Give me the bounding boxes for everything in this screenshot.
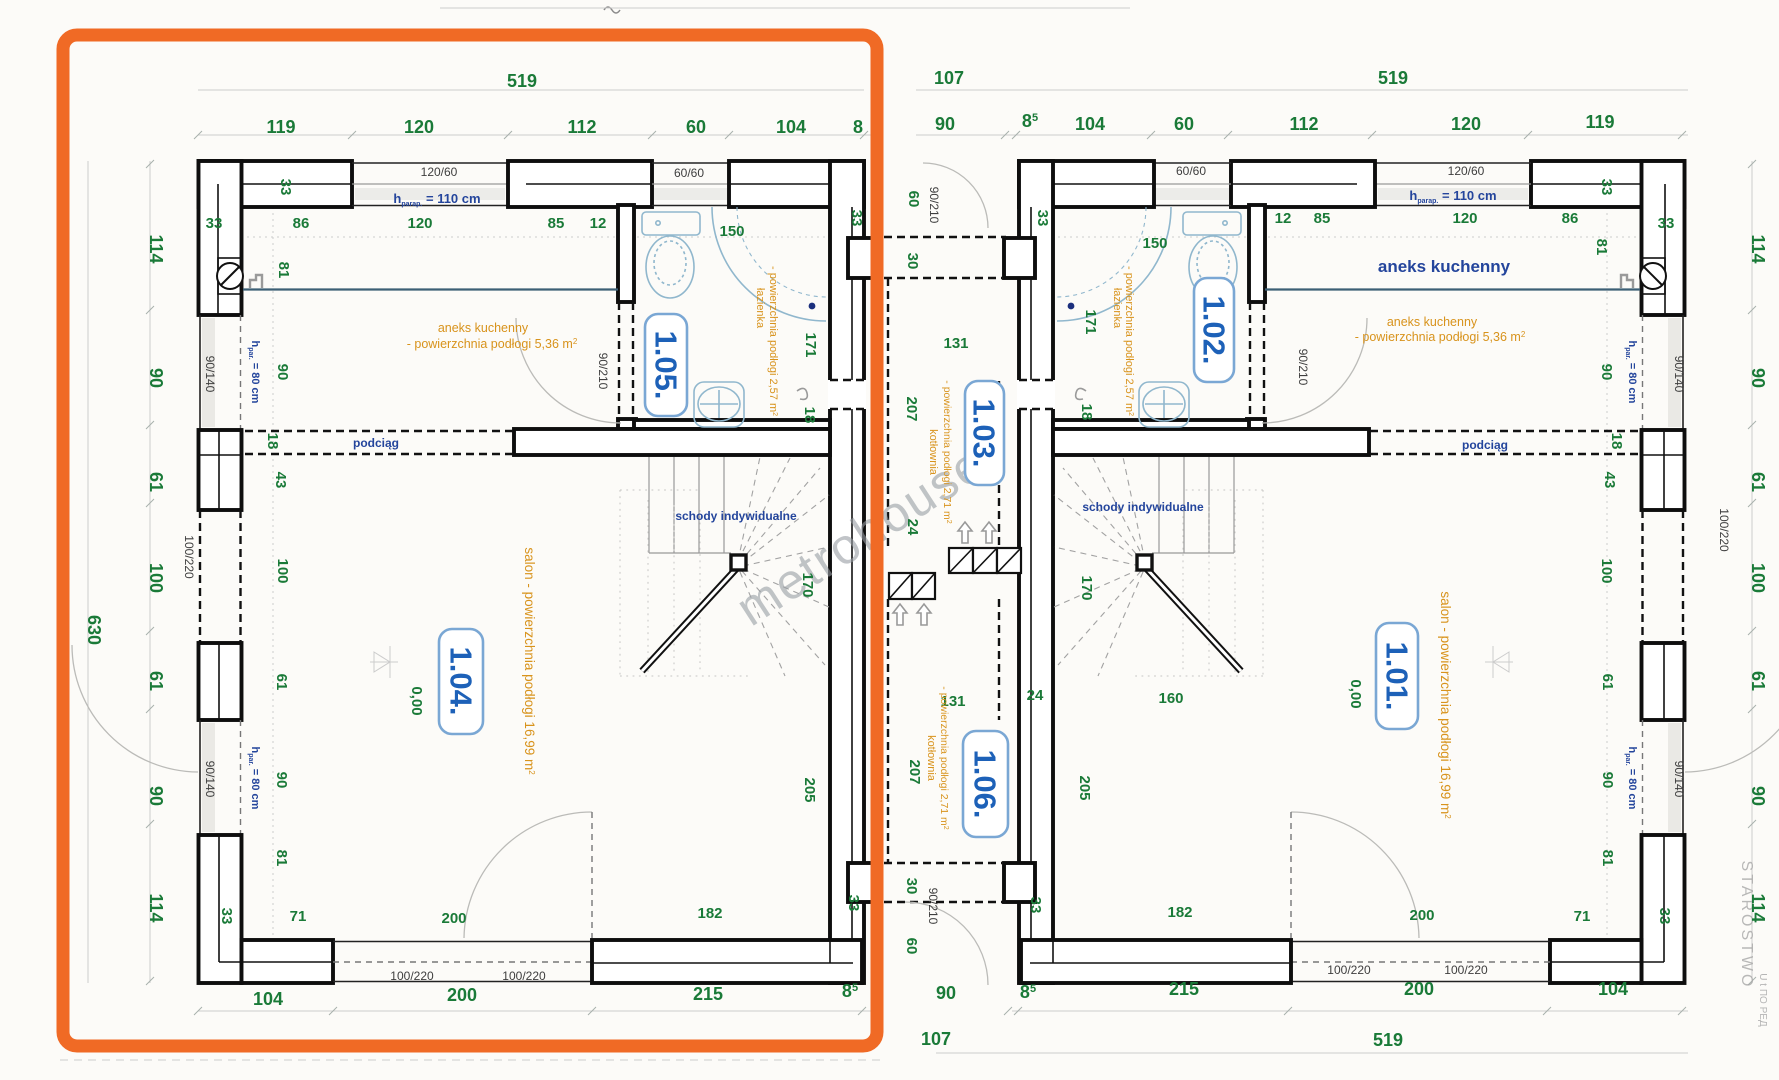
svg-text:120: 120: [404, 117, 434, 137]
svg-text:207: 207: [906, 759, 923, 784]
svg-text:90/140: 90/140: [203, 356, 217, 393]
svg-text:33: 33: [848, 210, 865, 227]
svg-text:aneks kuchenny: aneks kuchenny: [438, 321, 529, 335]
svg-text:18: 18: [264, 433, 281, 450]
svg-text:81: 81: [1599, 850, 1616, 867]
svg-text:61: 61: [1748, 671, 1768, 691]
svg-text:170: 170: [1078, 575, 1095, 600]
svg-text:61: 61: [1748, 472, 1768, 492]
svg-text:90: 90: [936, 983, 956, 1003]
svg-text:104: 104: [253, 989, 283, 1009]
svg-text:107: 107: [921, 1029, 951, 1049]
svg-text:schody indywidualne: schody indywidualne: [675, 509, 797, 523]
svg-text:salon - powierzchnia podłogi 1: salon - powierzchnia podłogi 16,99 m2: [522, 547, 537, 775]
svg-text:aneks kuchenny: aneks kuchenny: [1387, 315, 1478, 329]
svg-text:12: 12: [590, 215, 607, 232]
svg-text:104: 104: [1598, 979, 1628, 999]
svg-text:200: 200: [447, 985, 477, 1005]
svg-text:STAROSTWO: STAROSTWO: [1738, 861, 1755, 990]
svg-text:33: 33: [845, 895, 862, 912]
svg-text:łazienka: łazienka: [1111, 288, 1123, 329]
svg-text:100/220: 100/220: [1717, 508, 1731, 552]
svg-text:120/60: 120/60: [421, 165, 458, 179]
svg-text:33: 33: [1034, 210, 1051, 227]
svg-text:205: 205: [1076, 775, 1093, 800]
svg-text:90: 90: [1599, 772, 1616, 789]
svg-text:85: 85: [548, 215, 565, 232]
svg-text:90/210: 90/210: [1296, 349, 1310, 386]
svg-text:łazienka: łazienka: [754, 288, 766, 329]
svg-text:90/140: 90/140: [1672, 761, 1686, 798]
svg-text:100/220: 100/220: [182, 535, 196, 579]
svg-text:90/210: 90/210: [596, 353, 610, 390]
svg-text:61: 61: [146, 472, 166, 492]
svg-text:100/220: 100/220: [1327, 963, 1371, 977]
svg-text:18: 18: [801, 407, 818, 424]
svg-text:100: 100: [274, 558, 291, 583]
svg-text:114: 114: [1748, 234, 1768, 263]
svg-text:90: 90: [1748, 786, 1768, 806]
svg-text:60/60: 60/60: [1176, 164, 1206, 178]
svg-text:- powierzchnia podłogi 5,36 m2: - powierzchnia podłogi 5,36 m2: [1355, 330, 1526, 344]
svg-text:86: 86: [1562, 210, 1579, 227]
svg-text:61: 61: [146, 671, 166, 691]
svg-text:kotłownia: kotłownia: [925, 735, 937, 782]
svg-text:90: 90: [935, 114, 955, 134]
svg-text:519: 519: [507, 71, 537, 91]
svg-text:200: 200: [1409, 907, 1434, 924]
svg-text:182: 182: [1167, 904, 1192, 921]
svg-text:90: 90: [146, 368, 166, 388]
svg-text:60: 60: [903, 938, 920, 955]
svg-text:61: 61: [273, 674, 290, 691]
svg-text:160: 160: [1158, 690, 1183, 707]
svg-text:81: 81: [1593, 239, 1610, 256]
svg-text:90/140: 90/140: [1672, 356, 1686, 393]
svg-text:kotłownia: kotłownia: [927, 429, 939, 476]
svg-text:18: 18: [1078, 404, 1095, 421]
svg-text:30: 30: [904, 253, 921, 270]
svg-text:schody indywidualne: schody indywidualne: [1082, 500, 1204, 514]
svg-text:90: 90: [1748, 368, 1768, 388]
svg-text:- powierzchnia podłogi 2,71 m2: - powierzchnia podłogi 2,71 m2: [941, 380, 953, 524]
svg-text:119: 119: [1585, 112, 1614, 132]
svg-text:60: 60: [1174, 114, 1194, 134]
svg-text:33: 33: [1658, 215, 1675, 232]
svg-text:- powierzchnia podłogi 5,36 m2: - powierzchnia podłogi 5,36 m2: [407, 337, 578, 351]
svg-text:90/210: 90/210: [927, 187, 941, 224]
svg-text:24: 24: [1027, 687, 1044, 704]
svg-text:131: 131: [943, 335, 968, 352]
svg-text:30: 30: [903, 878, 920, 895]
svg-text:90: 90: [274, 364, 291, 381]
svg-text:90/210: 90/210: [926, 888, 940, 925]
svg-text:86: 86: [293, 215, 310, 232]
svg-text:112: 112: [1289, 114, 1318, 134]
svg-text:1.06.: 1.06.: [968, 750, 1003, 819]
svg-text:- powierzchnia podłogi 2,57 m2: - powierzchnia podłogi 2,57 m2: [767, 266, 779, 416]
svg-text:33: 33: [277, 179, 294, 196]
svg-text:114: 114: [1748, 893, 1768, 922]
svg-text:60/60: 60/60: [674, 166, 704, 180]
svg-text:519: 519: [1378, 68, 1408, 88]
svg-text:205: 205: [801, 777, 818, 802]
svg-text:8: 8: [853, 117, 863, 137]
svg-text:112: 112: [567, 117, 596, 137]
svg-text:18: 18: [1608, 433, 1625, 450]
svg-text:90/140: 90/140: [203, 761, 217, 798]
svg-text:200: 200: [441, 910, 466, 927]
svg-text:120: 120: [1451, 114, 1481, 134]
svg-text:1.04.: 1.04.: [444, 647, 479, 716]
svg-text:U t ПО РЕД: U t ПО РЕД: [1757, 973, 1768, 1027]
svg-text:171: 171: [1082, 309, 1099, 334]
svg-text:119: 119: [266, 117, 295, 137]
svg-text:200: 200: [1404, 979, 1434, 999]
svg-text:104: 104: [1075, 114, 1105, 134]
svg-text:podciąg: podciąg: [1462, 438, 1508, 452]
svg-text:114: 114: [146, 234, 166, 263]
svg-text:81: 81: [273, 850, 290, 867]
svg-text:215: 215: [1169, 979, 1199, 999]
svg-text:150: 150: [719, 223, 744, 240]
svg-text:81: 81: [275, 262, 292, 279]
svg-text:- powierzchnia podłogi 2,71 m2: - powierzchnia podłogi 2,71 m2: [938, 686, 950, 830]
svg-text:100/220: 100/220: [502, 969, 546, 983]
svg-text:12: 12: [1275, 210, 1292, 227]
svg-text:salon - powierzchnia podłogi 1: salon - powierzchnia podłogi 16,99 m2: [1438, 591, 1453, 819]
svg-text:0,00: 0,00: [408, 686, 425, 715]
svg-text:24: 24: [904, 519, 921, 536]
svg-text:215: 215: [693, 984, 723, 1004]
svg-text:- powierzchnia podłogi 2,57 m2: - powierzchnia podłogi 2,57 m2: [1123, 266, 1135, 416]
svg-text:100: 100: [1598, 558, 1615, 583]
svg-text:120: 120: [1452, 210, 1477, 227]
svg-text:60: 60: [905, 191, 922, 208]
svg-text:100/220: 100/220: [390, 969, 434, 983]
svg-text:71: 71: [290, 908, 307, 925]
svg-text:120: 120: [407, 215, 432, 232]
svg-text:104: 104: [776, 117, 806, 137]
svg-text:33: 33: [206, 215, 223, 232]
svg-text:630: 630: [84, 615, 104, 645]
svg-text:85: 85: [1314, 210, 1331, 227]
svg-text:1.05.: 1.05.: [649, 331, 684, 400]
svg-text:182: 182: [697, 905, 722, 922]
svg-text:1.03.: 1.03.: [967, 399, 1002, 468]
svg-text:114: 114: [146, 893, 166, 922]
svg-text:43: 43: [1601, 472, 1618, 489]
svg-text:0,00: 0,00: [1347, 679, 1364, 708]
svg-text:171: 171: [802, 332, 819, 357]
svg-text:33: 33: [1656, 908, 1673, 925]
svg-text:207: 207: [903, 396, 920, 421]
svg-text:150: 150: [1142, 235, 1167, 252]
svg-text:90: 90: [1598, 364, 1615, 381]
svg-text:519: 519: [1373, 1030, 1403, 1050]
svg-text:61: 61: [1599, 674, 1616, 691]
svg-text:aneks kuchenny: aneks kuchenny: [1378, 257, 1511, 276]
svg-text:43: 43: [272, 472, 289, 489]
svg-text:33: 33: [218, 908, 235, 925]
svg-text:71: 71: [1574, 908, 1591, 925]
svg-text:podciąg: podciąg: [353, 436, 399, 450]
svg-text:90: 90: [146, 786, 166, 806]
svg-text:90: 90: [273, 772, 290, 789]
svg-text:33: 33: [1027, 897, 1044, 914]
svg-text:60: 60: [686, 117, 706, 137]
svg-text:33: 33: [1598, 179, 1615, 196]
svg-text:120/60: 120/60: [1448, 164, 1485, 178]
svg-text:170: 170: [799, 572, 816, 597]
svg-text:1.01.: 1.01.: [1380, 642, 1415, 711]
svg-text:100: 100: [146, 563, 166, 593]
svg-text:107: 107: [934, 68, 964, 88]
svg-text:1.02.: 1.02.: [1197, 296, 1232, 365]
svg-text:100: 100: [1748, 563, 1768, 593]
svg-text:100/220: 100/220: [1444, 963, 1488, 977]
